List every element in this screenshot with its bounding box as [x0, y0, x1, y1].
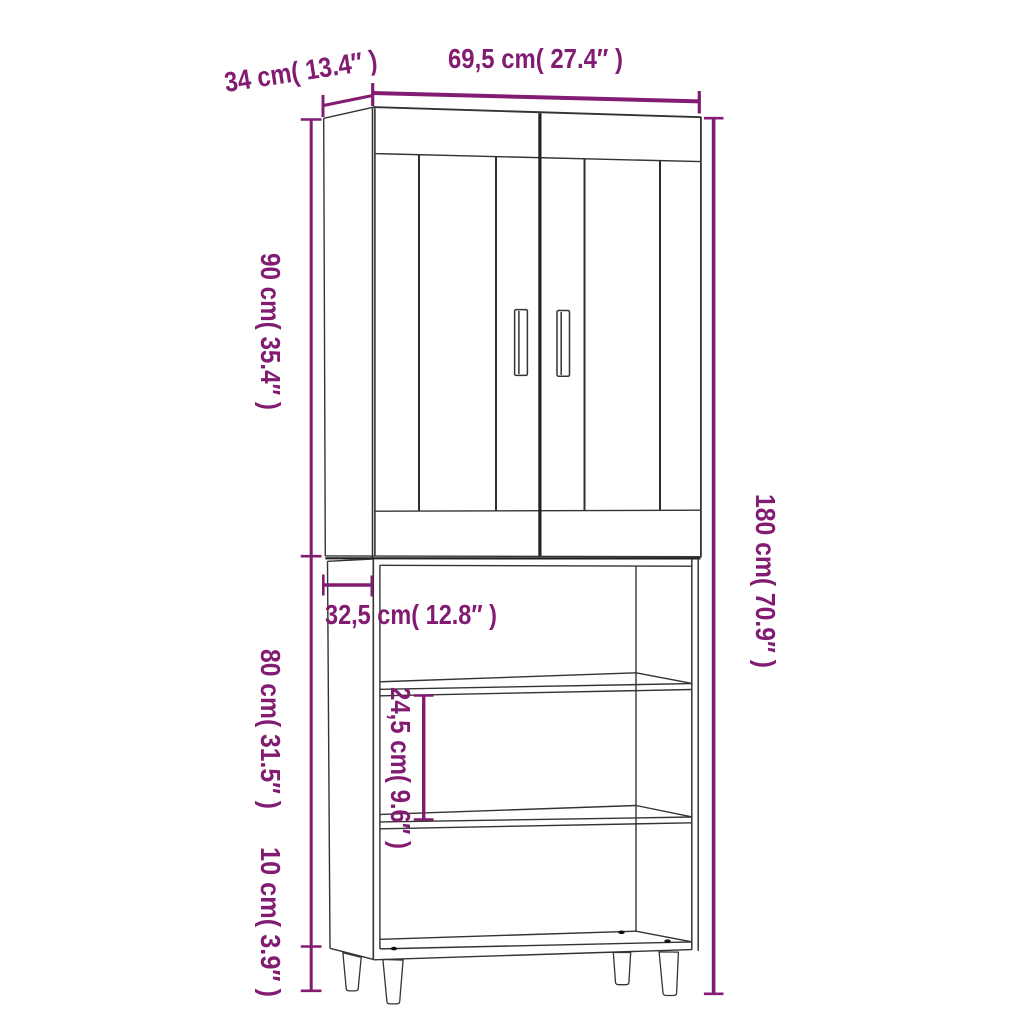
svg-text:80 cm( 31.5″ ): 80 cm( 31.5″ )	[255, 649, 286, 809]
svg-text:90 cm( 35.4″ ): 90 cm( 35.4″ )	[255, 253, 286, 410]
svg-text:24,5 cm( 9.6″ ): 24,5 cm( 9.6″ )	[385, 687, 416, 849]
svg-text:69,5 cm( 27.4″ ): 69,5 cm( 27.4″ )	[448, 43, 623, 74]
svg-text:10 cm( 3.9″ ): 10 cm( 3.9″ )	[255, 847, 286, 997]
svg-text:180 cm( 70.9″ ): 180 cm( 70.9″ )	[750, 494, 781, 668]
svg-text:32,5 cm( 12.8″ ): 32,5 cm( 12.8″ )	[325, 599, 497, 630]
